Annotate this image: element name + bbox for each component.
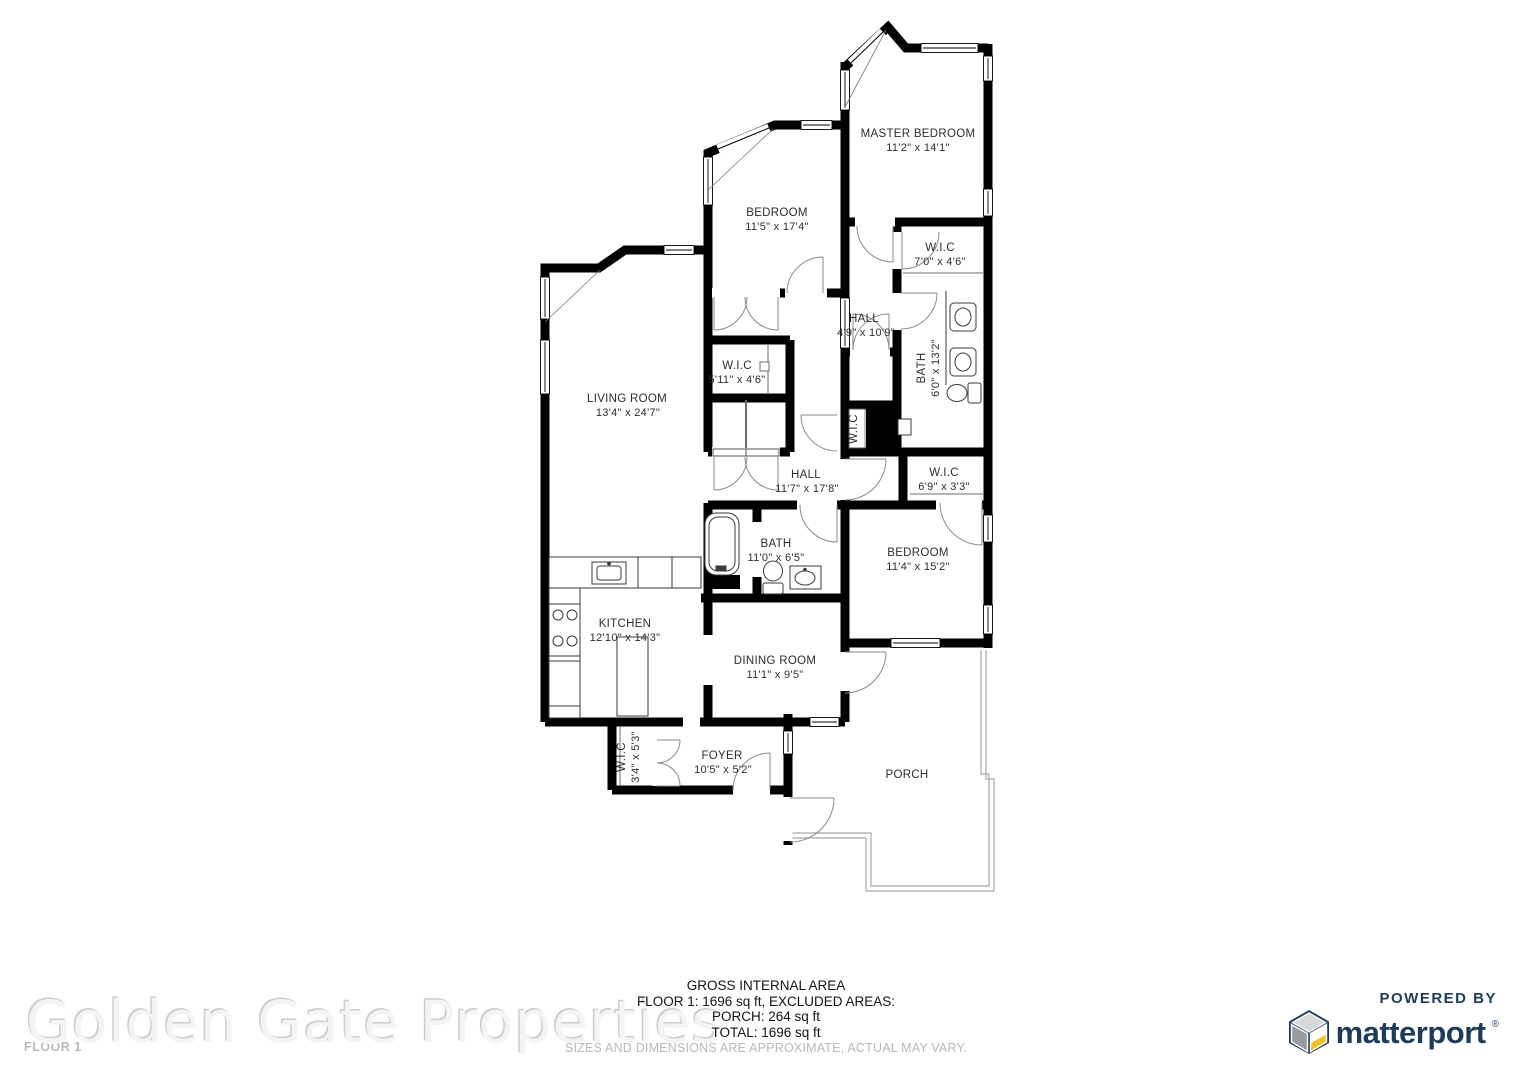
svg-text:11'4" x 15'2": 11'4" x 15'2" bbox=[886, 561, 949, 573]
svg-text:4'9" x 10'9": 4'9" x 10'9" bbox=[837, 327, 895, 339]
svg-text:HALL: HALL bbox=[791, 469, 821, 481]
small-vanity-icon bbox=[898, 419, 911, 435]
svg-text:W.I.C: W.I.C bbox=[616, 742, 628, 772]
svg-text:11'7" x 17'8": 11'7" x 17'8" bbox=[775, 483, 838, 495]
toilet-icon-bath2 bbox=[763, 561, 783, 594]
svg-text:PORCH: PORCH bbox=[885, 769, 928, 781]
svg-text:5'11" x 4'6": 5'11" x 4'6" bbox=[709, 374, 766, 386]
total-area-line: TOTAL: 1696 sq ft bbox=[391, 1025, 1141, 1041]
room-label-dining-room: DINING ROOM 11'1" x 9'5" bbox=[734, 655, 817, 681]
bathtub-icon bbox=[705, 513, 739, 575]
matterport-cube-icon bbox=[1288, 1009, 1330, 1055]
room-label-hall-main: HALL 11'7" x 17'8" bbox=[775, 469, 838, 495]
room-label-foyer: FOYER 10'5" x 5'2" bbox=[694, 750, 752, 776]
svg-text:11'2" x 14'1": 11'2" x 14'1" bbox=[886, 142, 949, 154]
svg-text:FOYER: FOYER bbox=[701, 750, 742, 762]
svg-text:DINING ROOM: DINING ROOM bbox=[734, 655, 817, 667]
shaft bbox=[870, 406, 897, 452]
sink-icon-bath2 bbox=[790, 566, 821, 589]
svg-text:6'0" x 13'2": 6'0" x 13'2" bbox=[930, 339, 942, 397]
gross-area-title: GROSS INTERNAL AREA bbox=[391, 978, 1141, 994]
floor-plan-page: Golden Gate Properties FLOOR 1 bbox=[0, 0, 1527, 1080]
room-label-wic-bedroom1: W.I.C 5'11" x 4'6" bbox=[709, 360, 766, 386]
porch-area-line: PORCH: 264 sq ft bbox=[391, 1009, 1141, 1025]
room-label-master-bedroom: MASTER BEDROOM 11'2" x 14'1" bbox=[861, 128, 976, 154]
room-label-porch: PORCH bbox=[885, 769, 928, 781]
svg-text:W.I.C: W.I.C bbox=[925, 242, 955, 254]
svg-text:7'0" x 4'6": 7'0" x 4'6" bbox=[914, 256, 965, 268]
floor-plan-drawing: MASTER BEDROOM 11'2" x 14'1" BEDROOM 11'… bbox=[0, 0, 1527, 1080]
svg-text:11'5" x 17'4": 11'5" x 17'4" bbox=[745, 221, 808, 233]
room-label-kitchen: KITCHEN 12'10" x 14'3" bbox=[590, 618, 661, 644]
area-summary: GROSS INTERNAL AREA FLOOR 1: 1696 sq ft,… bbox=[391, 978, 1141, 1057]
svg-text:MASTER BEDROOM: MASTER BEDROOM bbox=[861, 128, 976, 140]
svg-text:3'4" x 5'3": 3'4" x 5'3" bbox=[630, 731, 642, 782]
bay-sill-lines bbox=[545, 30, 886, 322]
matterport-branding: POWERED BY matterport ® bbox=[1288, 990, 1499, 1055]
svg-text:W.I.C: W.I.C bbox=[848, 414, 860, 444]
svg-text:12'10" x 14'3": 12'10" x 14'3" bbox=[590, 632, 661, 644]
floor-area-line: FLOOR 1: 1696 sq ft, EXCLUDED AREAS: bbox=[391, 994, 1141, 1010]
svg-text:10'5" x 5'2": 10'5" x 5'2" bbox=[694, 764, 752, 776]
disclaimer-text: SIZES AND DIMENSIONS ARE APPROXIMATE, AC… bbox=[391, 1041, 1141, 1057]
toilet-icon-master bbox=[947, 383, 981, 403]
svg-text:6'9" x 3'3": 6'9" x 3'3" bbox=[918, 481, 969, 493]
svg-text:KITCHEN: KITCHEN bbox=[599, 618, 652, 630]
svg-text:HALL: HALL bbox=[849, 313, 879, 325]
svg-text:BATH: BATH bbox=[760, 538, 791, 550]
svg-text:BATH: BATH bbox=[916, 352, 928, 383]
master-bath-vanity bbox=[946, 291, 976, 385]
svg-text:11'1" x 9'5": 11'1" x 9'5" bbox=[747, 669, 804, 681]
svg-text:W.I.C: W.I.C bbox=[722, 360, 752, 372]
room-label-wic-bedroom2: W.I.C 6'9" x 3'3" bbox=[918, 467, 969, 493]
room-label-bath-2: BATH 11'0" x 6'5" bbox=[748, 538, 805, 564]
closet-lines bbox=[620, 273, 983, 785]
matterport-wordmark: matterport bbox=[1336, 1017, 1486, 1048]
room-label-wic-master: W.I.C 7'0" x 4'6" bbox=[914, 242, 965, 268]
svg-text:BEDROOM: BEDROOM bbox=[887, 547, 949, 559]
fridge-icon bbox=[549, 661, 580, 706]
svg-text:W.I.C: W.I.C bbox=[929, 467, 959, 479]
stove-icon bbox=[549, 604, 580, 656]
svg-text:LIVING ROOM: LIVING ROOM bbox=[587, 393, 667, 405]
room-label-living-room: LIVING ROOM 13'4" x 24'7" bbox=[587, 393, 667, 419]
svg-text:13'4" x 24'7": 13'4" x 24'7" bbox=[596, 407, 660, 419]
room-label-wic-hall: W.I.C bbox=[848, 414, 860, 444]
room-label-bedroom-1: BEDROOM 11'5" x 17'4" bbox=[745, 207, 808, 233]
room-label-bath-master: BATH 6'0" x 13'2" bbox=[916, 339, 942, 397]
registered-trademark: ® bbox=[1492, 1020, 1499, 1030]
svg-text:11'0" x 6'5": 11'0" x 6'5" bbox=[748, 552, 805, 564]
powered-by-text: POWERED BY bbox=[1288, 990, 1497, 1007]
svg-text:BEDROOM: BEDROOM bbox=[746, 207, 808, 219]
room-label-bedroom-2: BEDROOM 11'4" x 15'2" bbox=[886, 547, 949, 573]
kitchen-island bbox=[617, 637, 648, 716]
tub-base bbox=[704, 575, 740, 589]
